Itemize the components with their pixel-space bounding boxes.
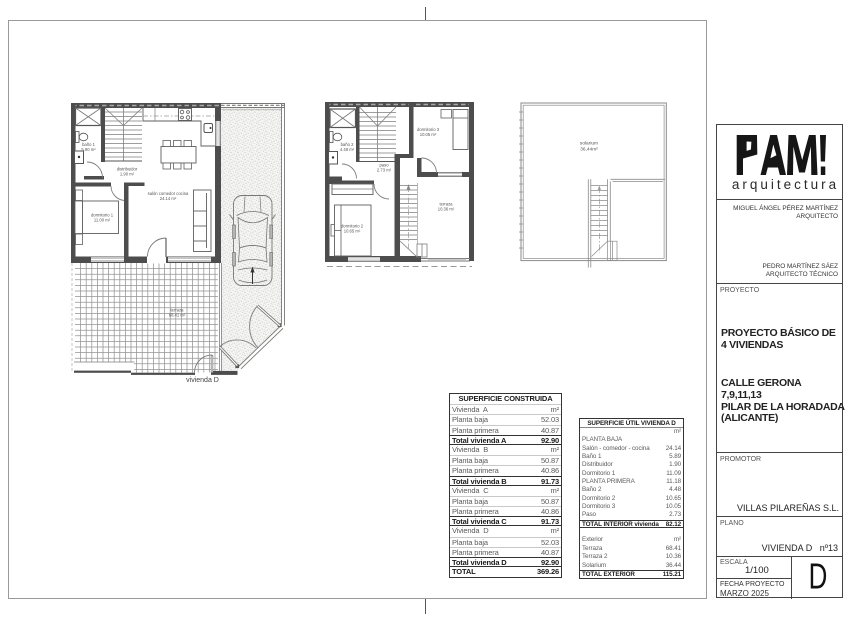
svg-text:4.48 m²: 4.48 m² <box>340 147 355 152</box>
svg-text:68.41 m²: 68.41 m² <box>169 313 186 318</box>
svg-text:10.05 m²: 10.05 m² <box>420 132 437 137</box>
svg-text:10.36 m²: 10.36 m² <box>438 207 455 212</box>
svg-text:2.73 m²: 2.73 m² <box>377 168 392 173</box>
svg-text:vivienda D: vivienda D <box>186 377 219 384</box>
svg-text:36,44m²: 36,44m² <box>580 147 598 153</box>
svg-text:11.00 m²: 11.00 m² <box>94 218 111 223</box>
svg-text:solarium: solarium <box>580 141 598 147</box>
svg-text:24.14 m²: 24.14 m² <box>160 196 177 201</box>
svg-text:5.90 m²: 5.90 m² <box>81 147 96 152</box>
svg-text:1.90 m²: 1.90 m² <box>120 172 135 177</box>
svg-text:10.65 m²: 10.65 m² <box>344 229 361 234</box>
